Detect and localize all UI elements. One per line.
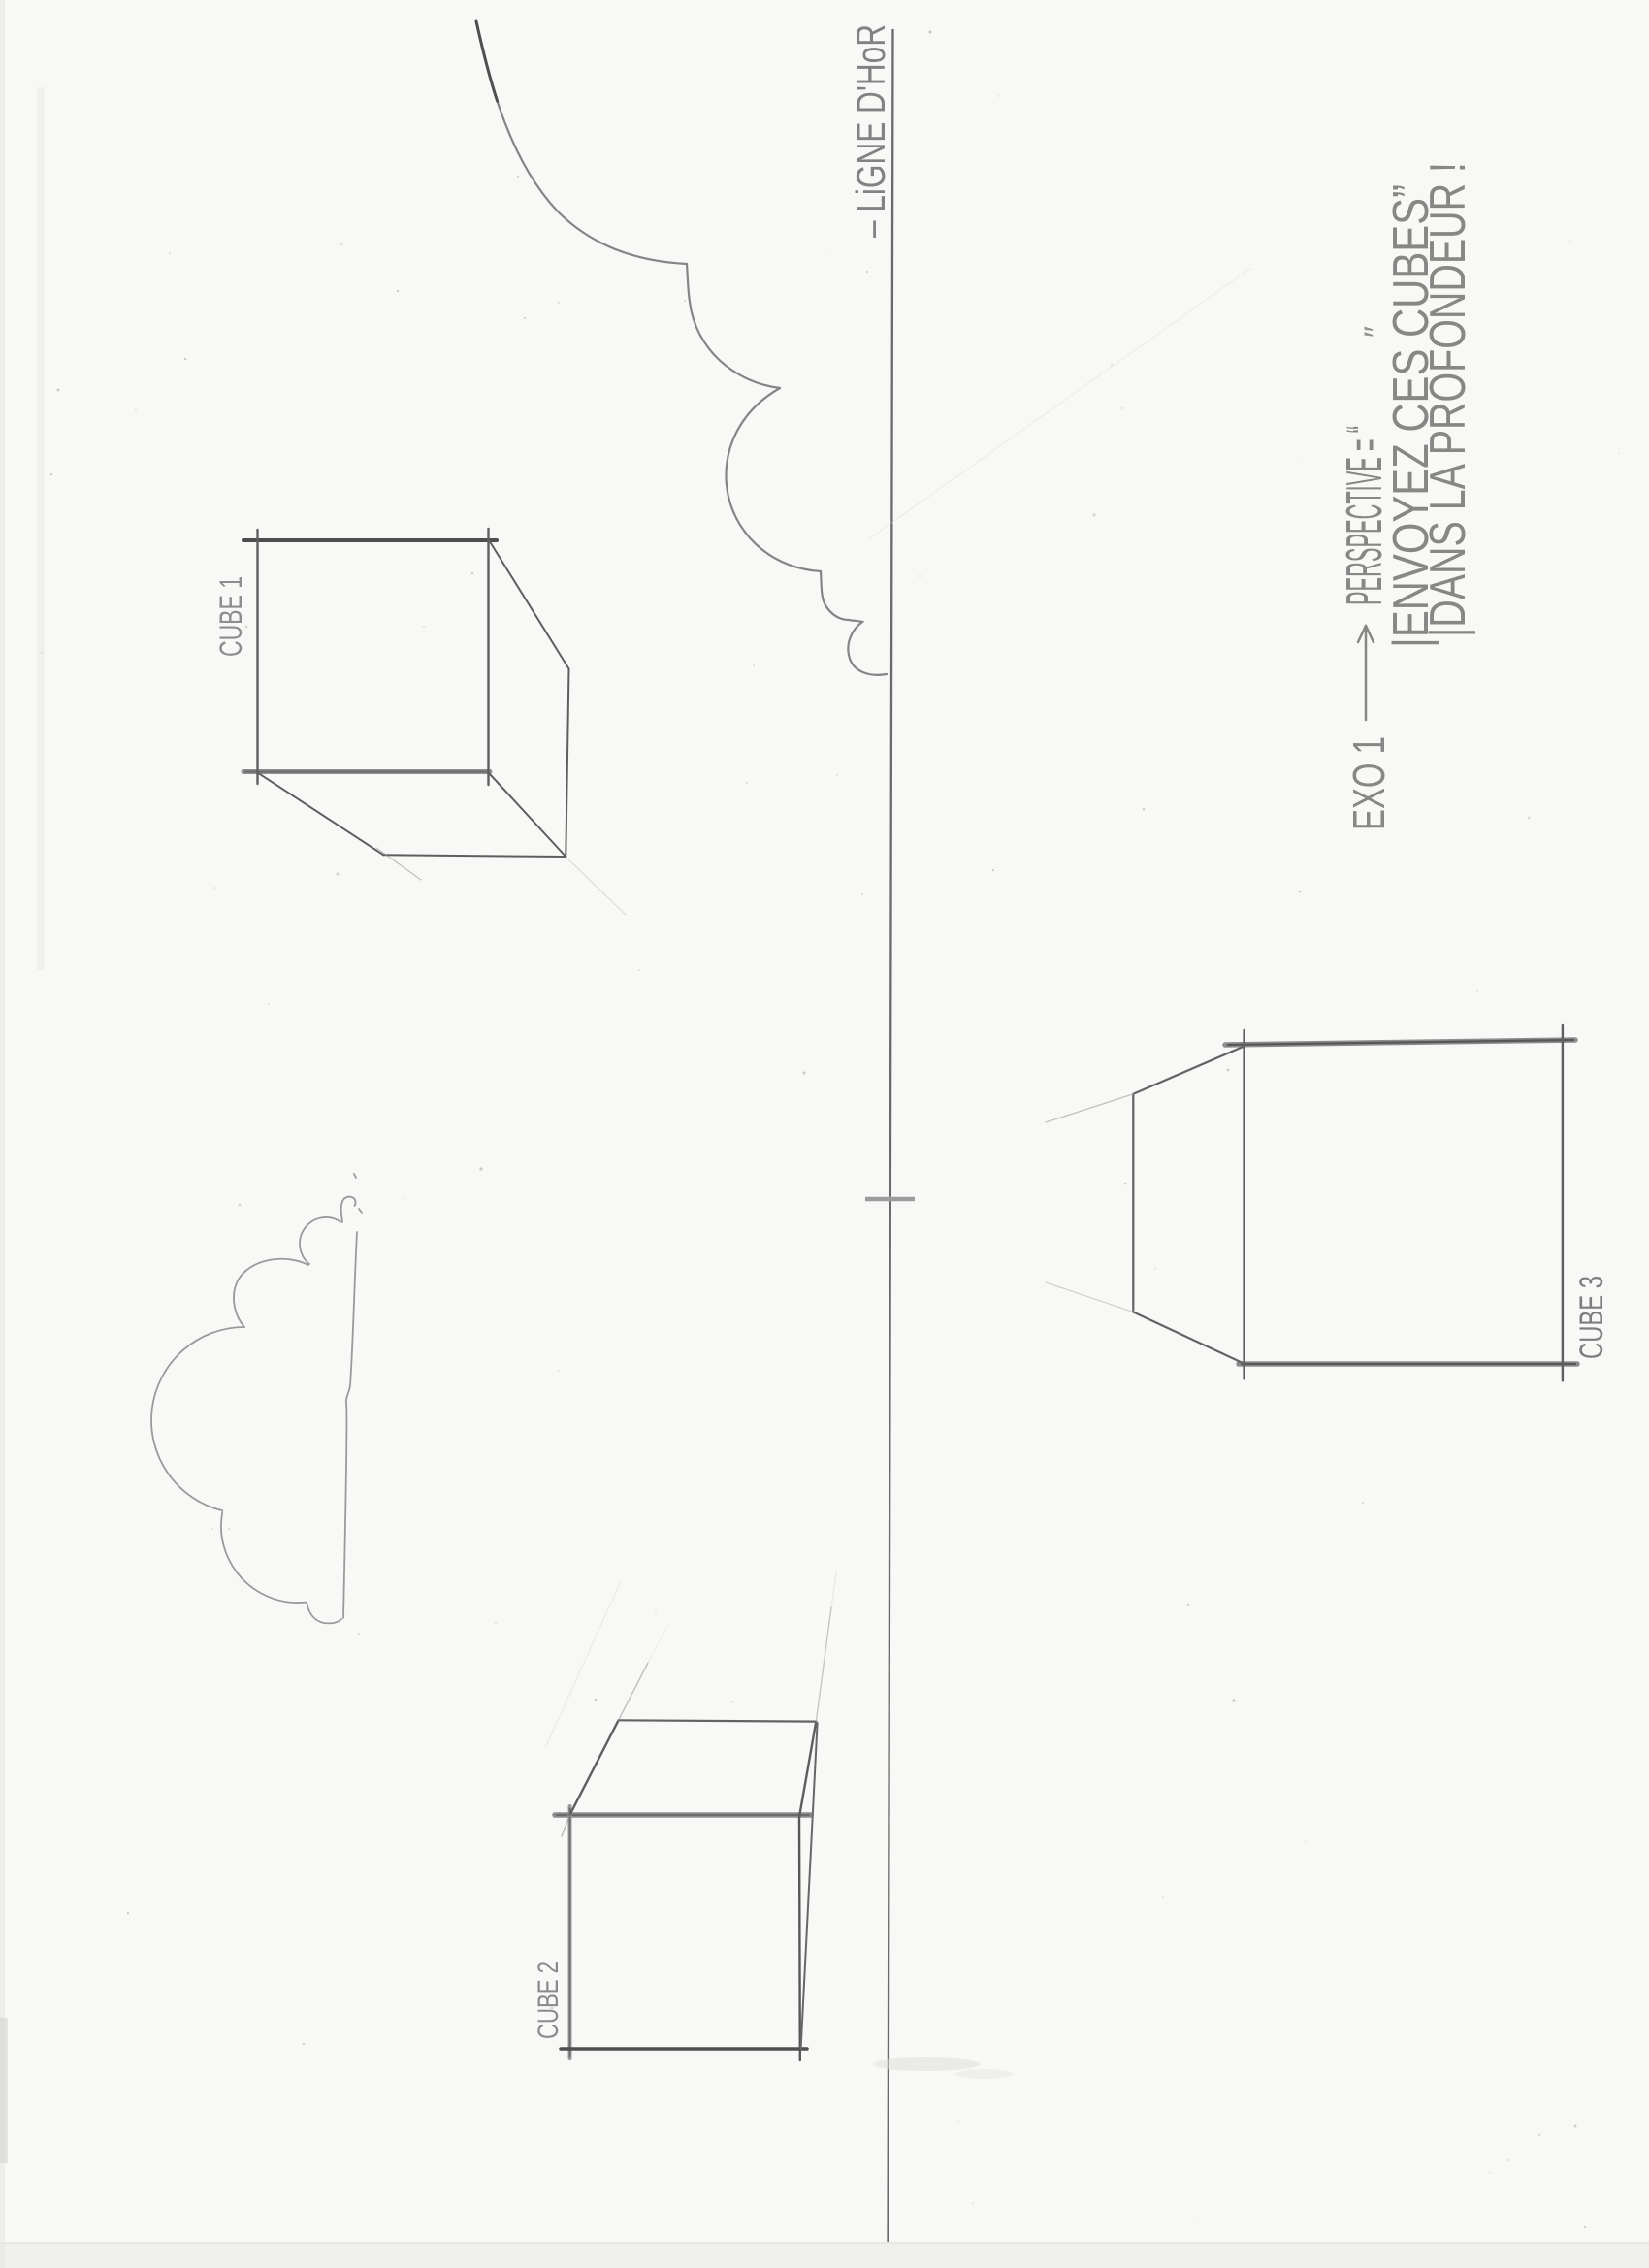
svg-text:– LiGNE D'HoR: – LiGNE D'HoR — [848, 24, 893, 238]
svg-text:|DANS LA PROFONDEUR !: |DANS LA PROFONDEUR ! — [1420, 162, 1476, 637]
svg-text:CUBE 3: CUBE 3 — [1573, 1276, 1610, 1359]
svg-text:″: ″ — [1358, 326, 1395, 338]
svg-text:EXO 1: EXO 1 — [1343, 736, 1394, 830]
svg-text:CUBE 2: CUBE 2 — [533, 1961, 565, 2039]
svg-text:CUBE 1: CUBE 1 — [213, 576, 248, 657]
